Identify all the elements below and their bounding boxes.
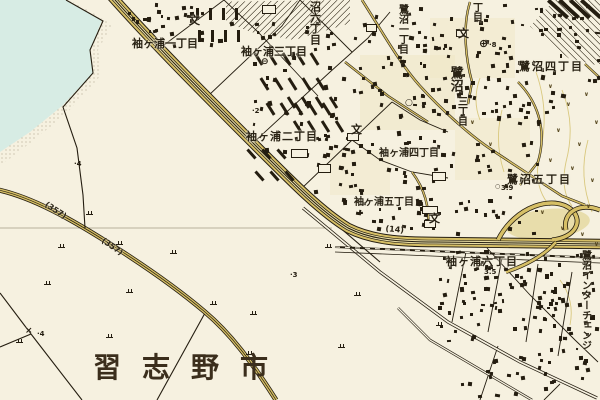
marsh-icon — [325, 243, 333, 248]
school-icon: 文 — [458, 28, 469, 39]
marsh-icon — [106, 333, 114, 338]
field-icon: ∨ — [488, 142, 493, 148]
spot-elevation: 3.9 — [501, 184, 513, 192]
field-icon: ∨ — [584, 92, 589, 98]
district-label-vertical: 丁目 — [470, 2, 481, 22]
field-icon: ∨ — [590, 178, 595, 184]
district-label: 鷺沼五丁目 — [507, 174, 572, 185]
field-icon: ∨ — [548, 158, 553, 164]
field-icon: ∨ — [580, 232, 585, 238]
spot-elevation: ·2 — [252, 107, 260, 115]
route-number-label: (14) — [385, 224, 404, 235]
spot-elevation: ·4 — [37, 330, 45, 338]
annotations-layer: 袖ヶ浦一丁目袖ヶ浦三丁目袖ヶ浦二丁目袖ヶ浦四丁目袖ヶ浦五丁目袖ヶ浦六丁目鷺沼四丁… — [0, 0, 600, 400]
substation-icon: ⊖ — [261, 58, 269, 67]
district-label: 袖ヶ浦六丁目 — [446, 256, 518, 267]
field-icon: ∨ — [570, 166, 575, 172]
spot-elevation: ·4 — [74, 160, 82, 168]
field-icon: ∨ — [594, 242, 599, 248]
district-label: 袖ヶ浦三丁目 — [241, 46, 307, 57]
district-label-vertical: 鷺沼一丁目 — [396, 4, 407, 54]
marsh-icon — [338, 343, 346, 348]
field-icon: ∨ — [560, 226, 565, 232]
field-icon: ∨ — [470, 120, 475, 126]
field-icon: ∨ — [594, 120, 599, 126]
marsh-icon — [16, 338, 24, 343]
district-label: 袖ヶ浦四丁目 — [379, 149, 439, 159]
city-name-label: 習志野市 — [93, 354, 289, 382]
field-icon: ∨ — [556, 128, 561, 134]
marsh-icon — [44, 280, 52, 285]
marsh-icon — [126, 288, 134, 293]
marsh-icon — [250, 310, 258, 315]
marsh-icon — [116, 240, 124, 245]
town-office-icon: ○ — [405, 99, 413, 108]
spot-height-circle-icon: ○ — [495, 184, 500, 190]
route-number-label: (357) — [43, 200, 68, 221]
district-label: 袖ヶ浦二丁目 — [246, 131, 318, 142]
marsh-icon — [86, 210, 94, 215]
topographic-map: 袖ヶ浦一丁目袖ヶ浦三丁目袖ヶ浦二丁目袖ヶ浦四丁目袖ヶ浦五丁目袖ヶ浦六丁目鷺沼四丁… — [0, 0, 600, 400]
district-label: 袖ヶ浦五丁目 — [354, 198, 414, 208]
marsh-icon — [436, 321, 444, 326]
marsh-icon — [210, 300, 218, 305]
district-label-vertical: 三丁目 — [455, 96, 466, 126]
spot-elevation: ·8 — [489, 41, 497, 49]
field-icon: ∨ — [548, 84, 553, 90]
field-icon: ∨ — [586, 204, 591, 210]
school-icon: 文 — [189, 15, 200, 26]
district-label: 袖ヶ浦一丁目 — [132, 38, 198, 49]
field-icon: ∨ — [577, 142, 582, 148]
spot-elevation: 3.5 — [484, 268, 496, 276]
district-label: 鷺沼四丁目 — [519, 61, 584, 72]
district-label-vertical: 鷺沼 — [448, 66, 462, 92]
marsh-icon — [170, 249, 178, 254]
spot-elevation: ·3 — [290, 271, 298, 279]
school-icon: 文 — [351, 124, 362, 135]
district-label-vertical: 沼六丁目 — [309, 1, 321, 45]
water-gate-icon: × — [25, 327, 33, 336]
field-icon: ∨ — [540, 210, 545, 216]
marsh-icon — [354, 291, 362, 296]
marsh-icon — [58, 243, 66, 248]
field-icon: ∨ — [566, 102, 571, 108]
school-icon: 文 — [429, 213, 440, 224]
public-office-icon: ⊕ — [479, 38, 488, 49]
district-label-vertical: 鷺沼インターチェンジ — [579, 250, 590, 350]
